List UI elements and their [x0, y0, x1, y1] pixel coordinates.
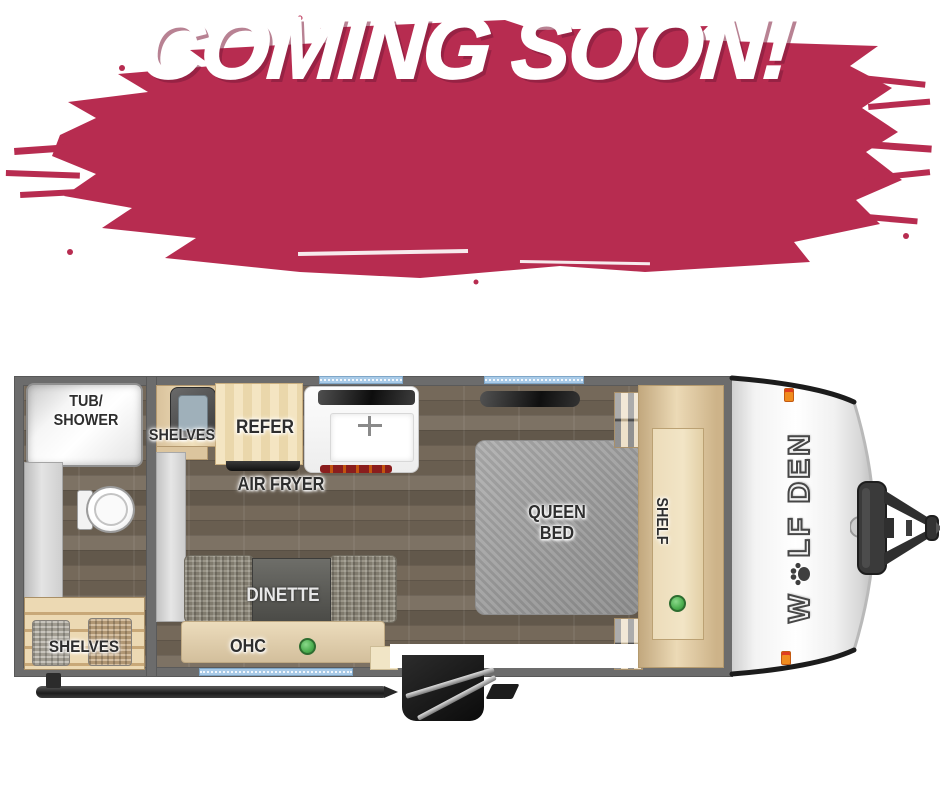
- step-foot: [486, 684, 520, 699]
- overhead-cabinet: [480, 391, 580, 407]
- kitchen-sink: [330, 413, 414, 462]
- brand-logo: W LF DEN: [780, 402, 820, 652]
- faucet-icon: [358, 424, 382, 427]
- brand-text-post: LF DEN: [783, 431, 817, 557]
- marker-light-icon: [784, 388, 794, 402]
- dinette-label: DINETTE: [234, 585, 333, 607]
- refrigerator-label: REFER: [226, 417, 303, 439]
- marker-light-icon: [781, 651, 791, 665]
- bed-label-line1: QUEEN: [494, 502, 620, 523]
- kitchen-shelves-label: SHELVES: [148, 427, 216, 445]
- shelf-label: SHELF: [646, 474, 676, 568]
- overhead-cabinet: [318, 390, 415, 405]
- awning-tube-end: [384, 686, 398, 698]
- awning-tube: [36, 686, 388, 698]
- toilet-seat: [94, 493, 128, 526]
- monitor-light: [669, 595, 686, 612]
- cooktop: [320, 465, 392, 473]
- page: COMING SOON!: [0, 0, 940, 788]
- window: [199, 668, 353, 676]
- bed-label-line2: BED: [494, 523, 620, 544]
- shelf-label-text: SHELF: [652, 497, 670, 544]
- bathroom-shelves-label: SHELVES: [34, 637, 135, 657]
- cabinet-side-panel: [156, 452, 186, 622]
- trailer-hitch: [850, 476, 940, 580]
- bathroom-wall: [147, 377, 156, 676]
- awning-bracket: [46, 673, 61, 688]
- queen-bed-label: QUEEN BED: [494, 502, 620, 544]
- tub-label-line1: TUB/: [41, 392, 131, 411]
- tub-label-line2: SHOWER: [41, 411, 131, 430]
- window: [319, 376, 403, 384]
- refrigerator-base: [226, 461, 300, 471]
- ohc-label: OHC: [212, 636, 284, 657]
- dinette-bench: [329, 555, 397, 623]
- window: [484, 376, 584, 384]
- appliance-screen: [178, 395, 208, 431]
- monitor-light: [299, 638, 316, 655]
- bathroom-cabinet: [24, 462, 63, 601]
- tub-shower-label: TUB/ SHOWER: [41, 392, 131, 430]
- paw-icon: [789, 563, 811, 587]
- brand-text-pre: W: [783, 592, 817, 623]
- coming-soon-text: COMING SOON!: [0, 0, 933, 100]
- air-fryer-label: AIR FRYER: [232, 474, 331, 495]
